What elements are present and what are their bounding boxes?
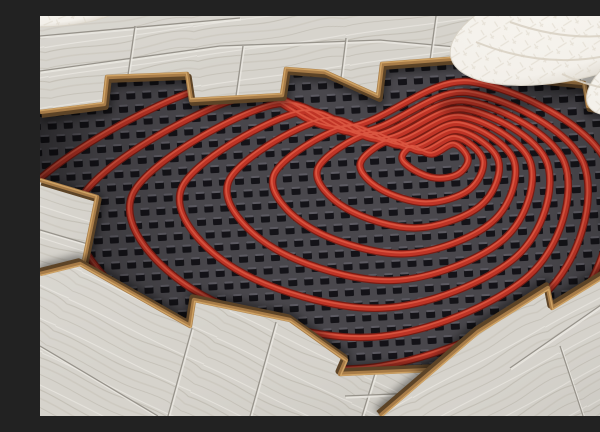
scene-canvas [40,16,600,416]
underfloor-heating-photo [40,16,600,416]
photo-svg [40,16,600,416]
